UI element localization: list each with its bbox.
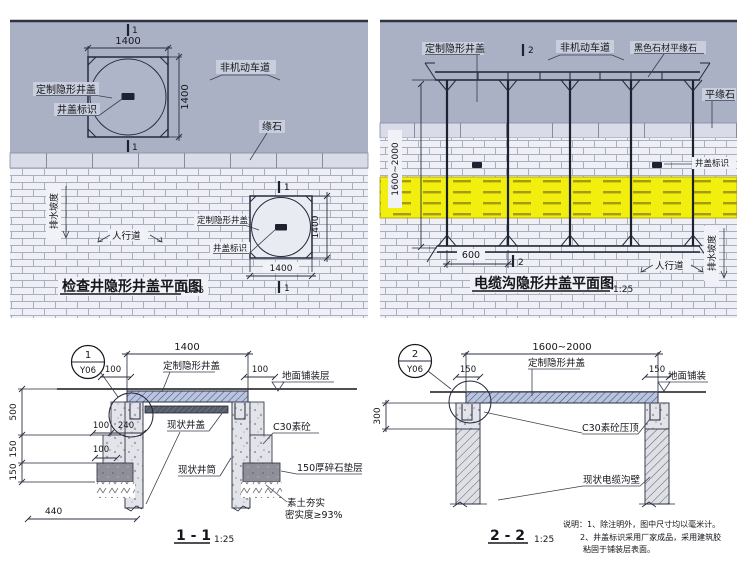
svg-text:440: 440 <box>45 507 62 517</box>
c30-cap-left <box>456 403 480 429</box>
label-custom-cover: 定制隐形井盖 <box>162 360 221 392</box>
svg-text:1400: 1400 <box>174 342 199 353</box>
svg-text:1: 1 <box>132 143 138 153</box>
svg-text:定制隐形井盖: 定制隐形井盖 <box>163 360 221 372</box>
ground-surface-symbol <box>658 382 670 391</box>
hidden-cover-slab <box>466 392 658 403</box>
plan-inspection-well: 1400 1400 1 1 定制隐形井盖 井盖标识 <box>10 20 368 318</box>
svg-text:1400: 1400 <box>270 264 293 274</box>
svg-text:缘石: 缘石 <box>262 120 282 133</box>
hidden-cover-slab <box>127 391 248 402</box>
engineering-drawing: 1400 1400 1 1 定制隐形井盖 井盖标识 <box>0 0 737 572</box>
compacted-soil-left <box>95 482 135 498</box>
compacted-soil-right <box>241 482 282 498</box>
svg-text:Y06: Y06 <box>79 366 96 376</box>
dim-440: 440 <box>25 507 140 522</box>
dim-300: 300 <box>373 400 456 432</box>
dim-stack-left: 500 150 150 <box>9 386 103 485</box>
svg-text:现状井筒: 现状井筒 <box>178 464 216 476</box>
drawing-sheet: 1400 1400 1 1 定制隐形井盖 井盖标识 <box>0 0 737 572</box>
section-1-1: 1 Y06 1400 100 100 500 150 150 <box>9 342 363 545</box>
svg-text:定制隐形井盖: 定制隐形井盖 <box>197 215 249 226</box>
svg-text:Y06: Y06 <box>406 365 423 375</box>
svg-text:电缆沟隐形井盖平面图: 电缆沟隐形井盖平面图 <box>474 275 614 292</box>
svg-text:500: 500 <box>9 403 19 420</box>
dim-100-right-top: 100 <box>241 365 278 380</box>
svg-text:2、井盖标识采用厂家成品，采用建筑胶: 2、井盖标识采用厂家成品，采用建筑胶 <box>580 532 721 542</box>
svg-text:150: 150 <box>9 440 19 457</box>
svg-text:100: 100 <box>93 445 109 455</box>
svg-text:1600~2000: 1600~2000 <box>391 142 401 196</box>
svg-text:素土夯实: 素土夯实 <box>287 497 325 509</box>
wall-break-marks <box>453 502 656 507</box>
shaft-break-marks <box>126 506 249 511</box>
svg-text:非机动车道: 非机动车道 <box>220 61 270 74</box>
svg-text:定制隐形井盖: 定制隐形井盖 <box>528 357 586 369</box>
svg-text:1:25: 1:25 <box>613 285 633 295</box>
manhole-cover-sidewalk <box>250 196 312 258</box>
svg-text:检查井隐形井盖平面图: 检查井隐形井盖平面图 <box>62 278 202 295</box>
svg-text:井盖标识: 井盖标识 <box>695 158 729 169</box>
svg-text:1400: 1400 <box>115 36 140 47</box>
label-trench-wall: 现状电缆沟壁 <box>498 474 650 500</box>
svg-text:人行道: 人行道 <box>655 260 684 272</box>
svg-text:粘固于铺装层表面。: 粘固于铺装层表面。 <box>583 544 655 554</box>
svg-text:C30素砼压顶: C30素砼压顶 <box>582 422 639 434</box>
svg-text:1400: 1400 <box>311 215 321 238</box>
cover-logo-mark <box>652 162 662 168</box>
gravel-pad-right <box>243 463 280 482</box>
svg-text:100: 100 <box>252 365 268 375</box>
svg-text:300: 300 <box>373 407 383 424</box>
svg-text:现状电缆沟壁: 现状电缆沟壁 <box>583 474 641 486</box>
svg-text:1 - 1: 1 - 1 <box>176 528 211 544</box>
svg-text:150: 150 <box>9 463 19 480</box>
svg-text:1:25: 1:25 <box>214 535 234 545</box>
label-gravel-layer: 150厚碎石垫层 <box>281 462 363 474</box>
label-c30-cap: C30素砼压顶 <box>484 412 650 434</box>
svg-text:1400: 1400 <box>180 84 191 109</box>
section-2-2: 2 Y06 1600~2000 150 150 300 定制隐形井盖 <box>373 342 721 554</box>
label-existing-cover: 现状井盖 <box>146 412 223 504</box>
svg-text:1: 1 <box>284 284 290 294</box>
svg-text:1: 1 <box>132 26 138 36</box>
curb-stone-row <box>10 153 368 168</box>
svg-text:黑色石材平缘石: 黑色石材平缘石 <box>634 42 697 54</box>
manhole-cover-road <box>88 57 168 137</box>
trench-wall-right <box>645 429 669 504</box>
svg-text:1:25: 1:25 <box>184 286 204 296</box>
dim-150-left: 150 <box>453 365 483 380</box>
svg-text:人行道: 人行道 <box>112 230 141 242</box>
svg-text:地面铺装层: 地面铺装层 <box>282 370 330 382</box>
label-custom-cover: 定制隐形井盖 <box>528 357 586 396</box>
svg-text:2: 2 <box>412 349 418 360</box>
svg-text:密实度≥93%: 密实度≥93% <box>285 509 343 521</box>
curb-stone-row <box>380 123 737 138</box>
notes-block: 说明：1、除注明外，图中尺寸均以毫米计。 2、井盖标识采用厂家成品，采用建筑胶 … <box>563 519 721 554</box>
svg-text:1: 1 <box>85 350 91 361</box>
svg-text:地面铺装: 地面铺装 <box>668 370 707 382</box>
cover-logo-mark <box>275 224 287 231</box>
gravel-pad-left <box>97 463 133 482</box>
svg-text:非机动车道: 非机动车道 <box>560 41 610 54</box>
svg-text:1: 1 <box>284 183 290 193</box>
svg-text:排水坡度: 排水坡度 <box>706 235 718 271</box>
section-2-title: 2 - 2 1:25 <box>488 528 554 545</box>
label-existing-shaft: 现状井筒 <box>178 458 231 476</box>
detail-callout-2: 2 Y06 <box>399 345 452 390</box>
svg-text:1600~2000: 1600~2000 <box>532 342 591 353</box>
svg-text:2: 2 <box>518 258 524 268</box>
tactile-paving-band <box>380 177 737 218</box>
c30-cap-right <box>645 403 669 429</box>
svg-text:现状井盖: 现状井盖 <box>167 419 206 431</box>
svg-text:排水坡度: 排水坡度 <box>48 193 60 229</box>
svg-text:定制隐形井盖: 定制隐形井盖 <box>425 42 485 55</box>
section-1-title: 1 - 1 1:25 <box>174 528 234 545</box>
svg-text:井盖标识: 井盖标识 <box>57 103 97 116</box>
svg-text:240: 240 <box>118 421 134 431</box>
svg-text:井盖标识: 井盖标识 <box>213 243 247 254</box>
cover-logo-mark <box>122 93 135 100</box>
plan-cable-trench: 1600~2000 600 2 2 定制隐形井盖 非机动车道 <box>380 20 737 318</box>
svg-text:150: 150 <box>460 365 476 375</box>
svg-text:说明：1、除注明外，图中尺寸均以毫米计。: 说明：1、除注明外，图中尺寸均以毫米计。 <box>563 519 720 529</box>
svg-text:1:25: 1:25 <box>534 535 554 545</box>
svg-text:100: 100 <box>105 365 121 375</box>
c30-block-right-lower <box>250 435 272 463</box>
label-pavement: 地面铺装层 <box>272 370 334 391</box>
svg-text:600: 600 <box>462 250 480 261</box>
svg-text:2: 2 <box>528 46 534 56</box>
c30-block-right-upper <box>250 402 264 435</box>
svg-text:150厚碎石垫层: 150厚碎石垫层 <box>297 462 363 474</box>
cover-logo-mark <box>472 162 482 168</box>
existing-cover <box>145 406 228 413</box>
svg-text:定制隐形井盖: 定制隐形井盖 <box>36 83 96 96</box>
plan-right-title: 电缆沟隐形井盖平面图 1:25 <box>470 274 633 295</box>
svg-text:150: 150 <box>649 365 665 375</box>
svg-text:2 - 2: 2 - 2 <box>490 528 525 544</box>
plan-left-title: 检查井隐形井盖平面图 1:25 <box>58 277 208 296</box>
svg-text:C30素砼: C30素砼 <box>273 421 311 433</box>
svg-text:平缘石: 平缘石 <box>705 88 735 101</box>
svg-text:100: 100 <box>93 421 109 431</box>
label-pavement: 地面铺装 <box>658 370 708 391</box>
trench-wall-left <box>456 429 480 504</box>
